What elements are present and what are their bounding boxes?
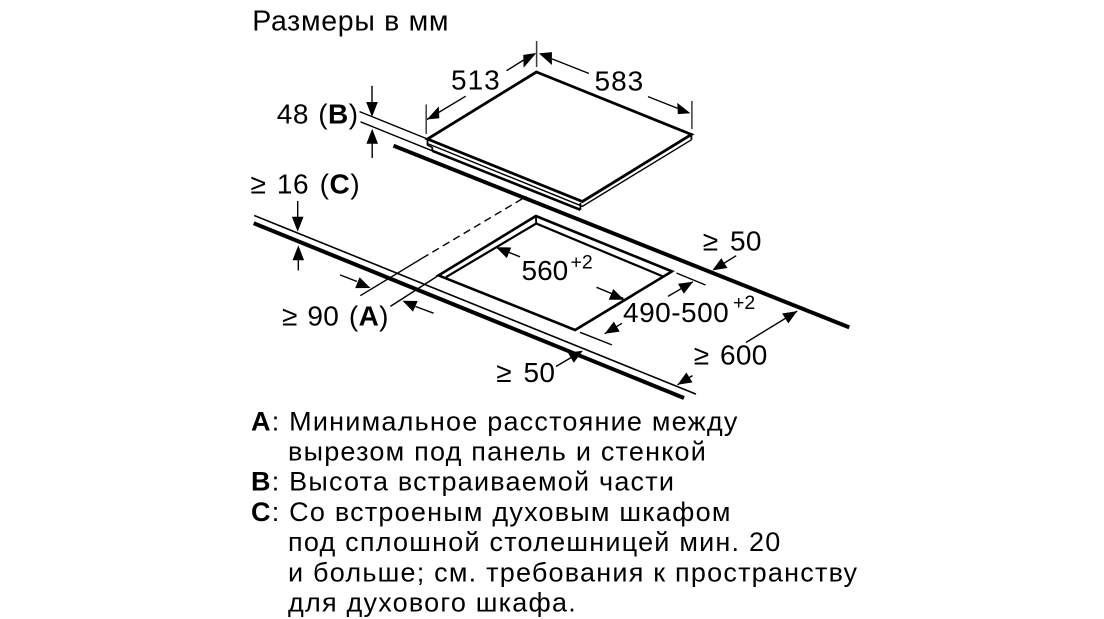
svg-text:48 (B): 48 (B) xyxy=(277,98,359,129)
svg-text:+2: +2 xyxy=(571,252,593,274)
svg-text:B: Высота встраиваемой части: B: Высота встраиваемой части xyxy=(251,467,675,497)
svg-text:513: 513 xyxy=(451,65,501,96)
svg-text:для духового шкафа.: для духового шкафа. xyxy=(288,588,577,618)
svg-text:≥ 600: ≥ 600 xyxy=(694,339,768,370)
svg-text:A: Минимальное расстояние межд: A: Минимальное расстояние между xyxy=(251,406,739,436)
svg-text:под сплошной столешницей мин.: под сплошной столешницей мин. 20 xyxy=(288,527,781,557)
svg-text:490-500: 490-500 xyxy=(623,297,729,328)
svg-text:≥ 90 (A): ≥ 90 (A) xyxy=(282,301,389,332)
svg-text:560: 560 xyxy=(522,255,569,286)
svg-text:+2: +2 xyxy=(733,292,755,314)
svg-text:≥ 50: ≥ 50 xyxy=(496,357,555,388)
svg-text:C: Со встроеным духовым шкафом: C: Со встроеным духовым шкафом xyxy=(251,497,732,527)
svg-text:и больше; см. требования к про: и больше; см. требования к пространству xyxy=(288,557,858,587)
svg-text:583: 583 xyxy=(595,65,645,96)
svg-text:вырезом под панель и стенкой: вырезом под панель и стенкой xyxy=(288,437,707,467)
svg-text:Размеры в мм: Размеры в мм xyxy=(252,6,449,38)
svg-text:≥ 50: ≥ 50 xyxy=(703,226,762,257)
svg-text:≥ 16 (C): ≥ 16 (C) xyxy=(251,169,361,200)
